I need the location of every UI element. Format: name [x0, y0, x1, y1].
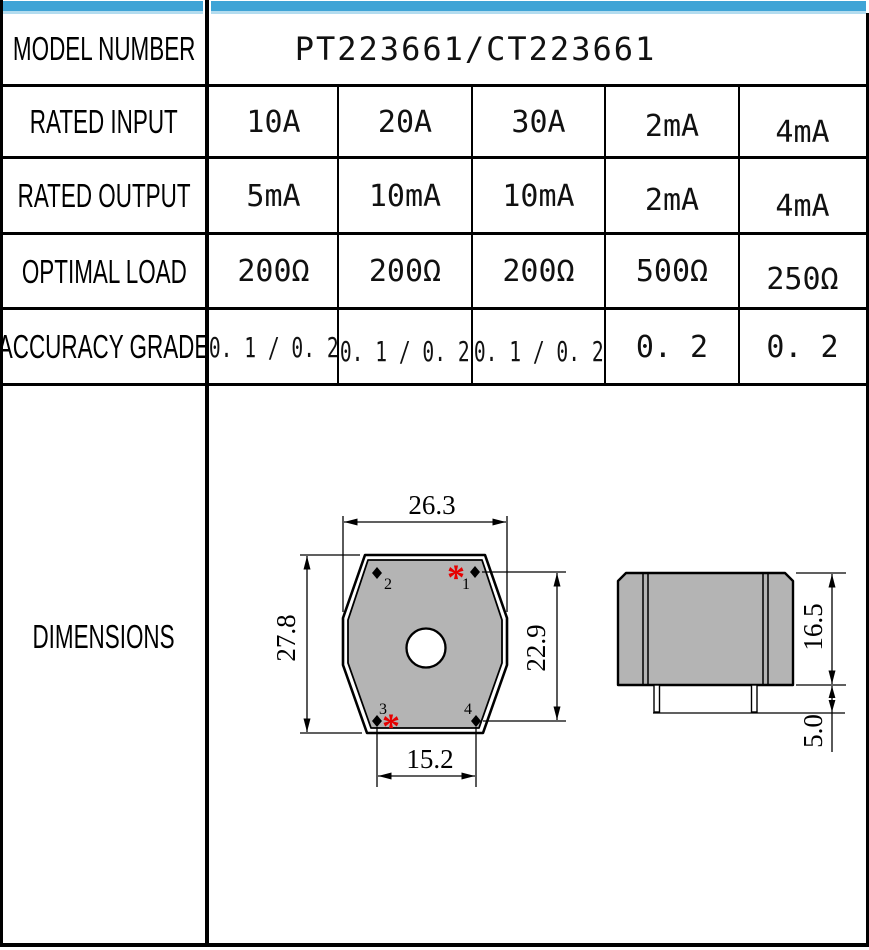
spec-cell: 10A [209, 88, 338, 156]
model-number-value: PT223661/CT223661 [295, 30, 657, 68]
spec-cell: 500Ω [605, 236, 739, 307]
dimension-top-value: 26.3 [408, 490, 455, 520]
spec-cell: 30A [472, 88, 605, 156]
spec-cell: 0. 2 [605, 311, 739, 383]
row-label-accuracy-grade: ACCURACY GRADE [3, 311, 205, 383]
spec-cell: 250Ω [739, 236, 866, 315]
polarity-star-pin3: * [382, 706, 400, 746]
spec-cell: 2mA [605, 88, 739, 160]
spec-cell: 0. 1 / 0. 2 [338, 311, 472, 387]
spec-value: 500Ω [636, 254, 708, 289]
pin-number-4: 4 [464, 701, 472, 718]
mounting-hole [407, 629, 446, 668]
row-label-rated-output: RATED OUTPUT [3, 160, 205, 232]
spec-cell: 0. 2 [739, 311, 866, 383]
row-label-text: RATED INPUT [30, 103, 178, 141]
spec-cell: 200Ω [338, 236, 472, 307]
pin-marker-4 [471, 715, 481, 727]
row-label-dimensions: DIMENSIONS [3, 387, 205, 943]
spec-cell: 5mA [209, 160, 338, 232]
spec-cell: 200Ω [472, 236, 605, 307]
front-view: 2 1 3 4 * * 26.3 27.8 [271, 490, 566, 787]
dimension-right-value: 22.9 [521, 624, 551, 671]
spec-cell: 2mA [605, 160, 739, 236]
spec-value: 0. 2 [636, 330, 708, 365]
spec-cell: 10mA [338, 160, 472, 232]
dimension-bottom-width [377, 727, 476, 787]
spec-value: 0. 1 / 0. 2 [209, 331, 338, 364]
spec-cell: 4mA [739, 160, 866, 242]
side-view: 16.5 5.0 [618, 573, 846, 752]
dimension-left-value: 27.8 [271, 614, 301, 661]
side-pin-left [654, 685, 660, 712]
pin-number-1: 1 [462, 576, 470, 593]
spec-value: 200Ω [502, 254, 574, 289]
spec-value: 200Ω [369, 254, 441, 289]
side-pin-right [752, 685, 758, 712]
dimension-body-height [796, 573, 846, 685]
spec-value: 4mA [775, 115, 829, 150]
spec-value: 10mA [369, 179, 441, 214]
row-label-text: DIMENSIONS [33, 618, 175, 656]
front-view-inner-body [348, 560, 502, 728]
dimension-pin-length-value: 5.0 [798, 714, 828, 748]
spec-value: 2mA [645, 109, 699, 144]
spec-cell: 0. 1 / 0. 2 [209, 311, 338, 383]
spec-cell: 4mA [739, 88, 866, 166]
side-view-body [618, 573, 793, 685]
dimension-top-width [343, 516, 507, 612]
row-label-optimal-load: OPTIMAL LOAD [3, 236, 205, 307]
spec-cell: 0. 1 / 0. 2 [472, 311, 605, 387]
pin-marker-1 [470, 566, 480, 578]
row-label-text: OPTIMAL LOAD [21, 253, 186, 291]
row-label-text: MODEL NUMBER [13, 30, 195, 68]
pin-marker-2 [372, 567, 382, 579]
pin-number-2: 2 [384, 576, 392, 593]
header-bar-left [3, 1, 203, 14]
spec-value: 30A [511, 105, 565, 140]
spec-value: 5mA [246, 179, 300, 214]
spec-value: 4mA [775, 189, 829, 224]
front-view-outer-outline [343, 555, 507, 733]
model-number-cell: PT223661/CT223661 [209, 14, 866, 84]
spec-value: 250Ω [766, 262, 838, 297]
spec-value: 10A [246, 105, 300, 140]
spec-cell: 10mA [472, 160, 605, 232]
dimension-body-height-value: 16.5 [798, 603, 828, 650]
polarity-star-pin1: * [447, 557, 465, 597]
pin-marker-3 [372, 715, 382, 727]
header-bar-right [211, 1, 866, 14]
spec-value: 0. 1 / 0. 2 [340, 335, 470, 368]
spec-cell: 20A [338, 88, 472, 156]
row-label-rated-input: RATED INPUT [3, 88, 205, 156]
dimension-bottom-value: 15.2 [406, 744, 453, 774]
dimension-left-height [300, 555, 362, 733]
dimension-right-height [482, 572, 566, 721]
datasheet: MODEL NUMBER RATED INPUT RATED OUTPUT OP… [0, 0, 869, 950]
spec-value: 10mA [502, 179, 574, 214]
pin-number-3: 3 [379, 701, 387, 718]
row-label-model-number: MODEL NUMBER [3, 14, 205, 84]
dimension-pin-length [829, 686, 836, 752]
row-label-text: RATED OUTPUT [18, 177, 191, 215]
spec-cell: 200Ω [209, 236, 338, 307]
row-label-text: ACCURACY GRADE [0, 328, 210, 366]
spec-value: 20A [378, 105, 432, 140]
spec-value: 0. 1 / 0. 2 [474, 335, 604, 368]
spec-value: 2mA [645, 183, 699, 218]
spec-value: 0. 2 [766, 330, 838, 365]
spec-value: 200Ω [237, 254, 309, 289]
side-view-groove-lines [643, 573, 768, 685]
table-border-bottom [0, 943, 869, 947]
